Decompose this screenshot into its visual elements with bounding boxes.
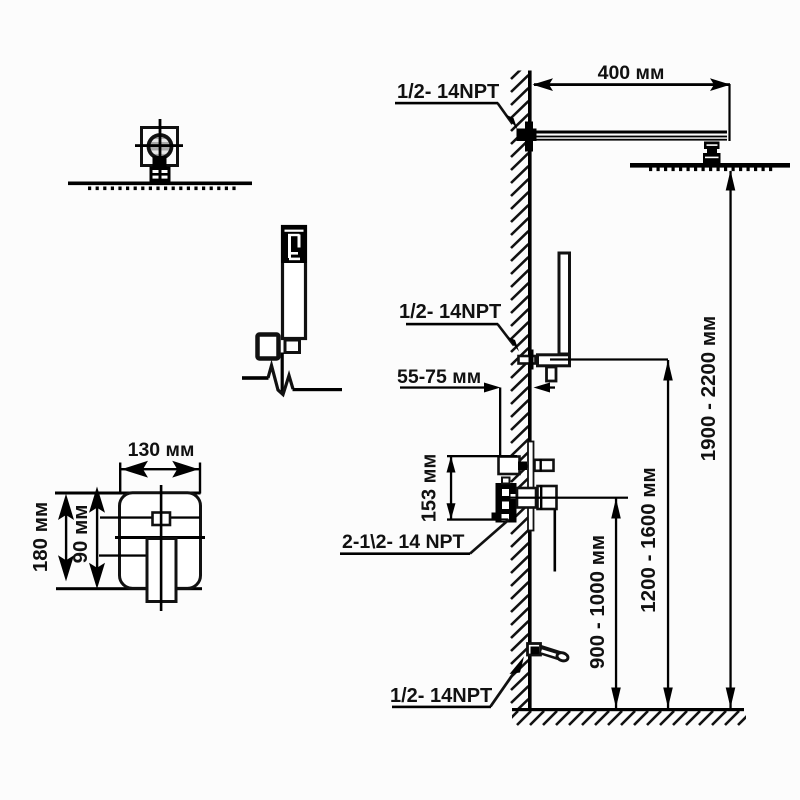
- svg-text:2-1\2- 14 NPT: 2-1\2- 14 NPT: [342, 531, 465, 553]
- svg-text:1/2- 14NPT: 1/2- 14NPT: [390, 685, 492, 707]
- svg-text:153 мм: 153 мм: [419, 454, 441, 523]
- svg-text:1/2- 14NPT: 1/2- 14NPT: [397, 81, 499, 103]
- svg-text:1200 - 1600 мм: 1200 - 1600 мм: [637, 467, 660, 612]
- svg-text:900 - 1000 мм: 900 - 1000 мм: [586, 535, 609, 669]
- svg-text:1900 - 2200 мм: 1900 - 2200 мм: [697, 316, 720, 461]
- svg-text:400 мм: 400 мм: [598, 62, 665, 84]
- svg-text:1/2- 14NPT: 1/2- 14NPT: [399, 301, 501, 323]
- svg-text:180 мм: 180 мм: [29, 502, 52, 572]
- svg-text:130 мм: 130 мм: [128, 439, 195, 461]
- svg-text:55-75 мм: 55-75 мм: [397, 366, 481, 388]
- svg-text:90 мм: 90 мм: [69, 505, 92, 564]
